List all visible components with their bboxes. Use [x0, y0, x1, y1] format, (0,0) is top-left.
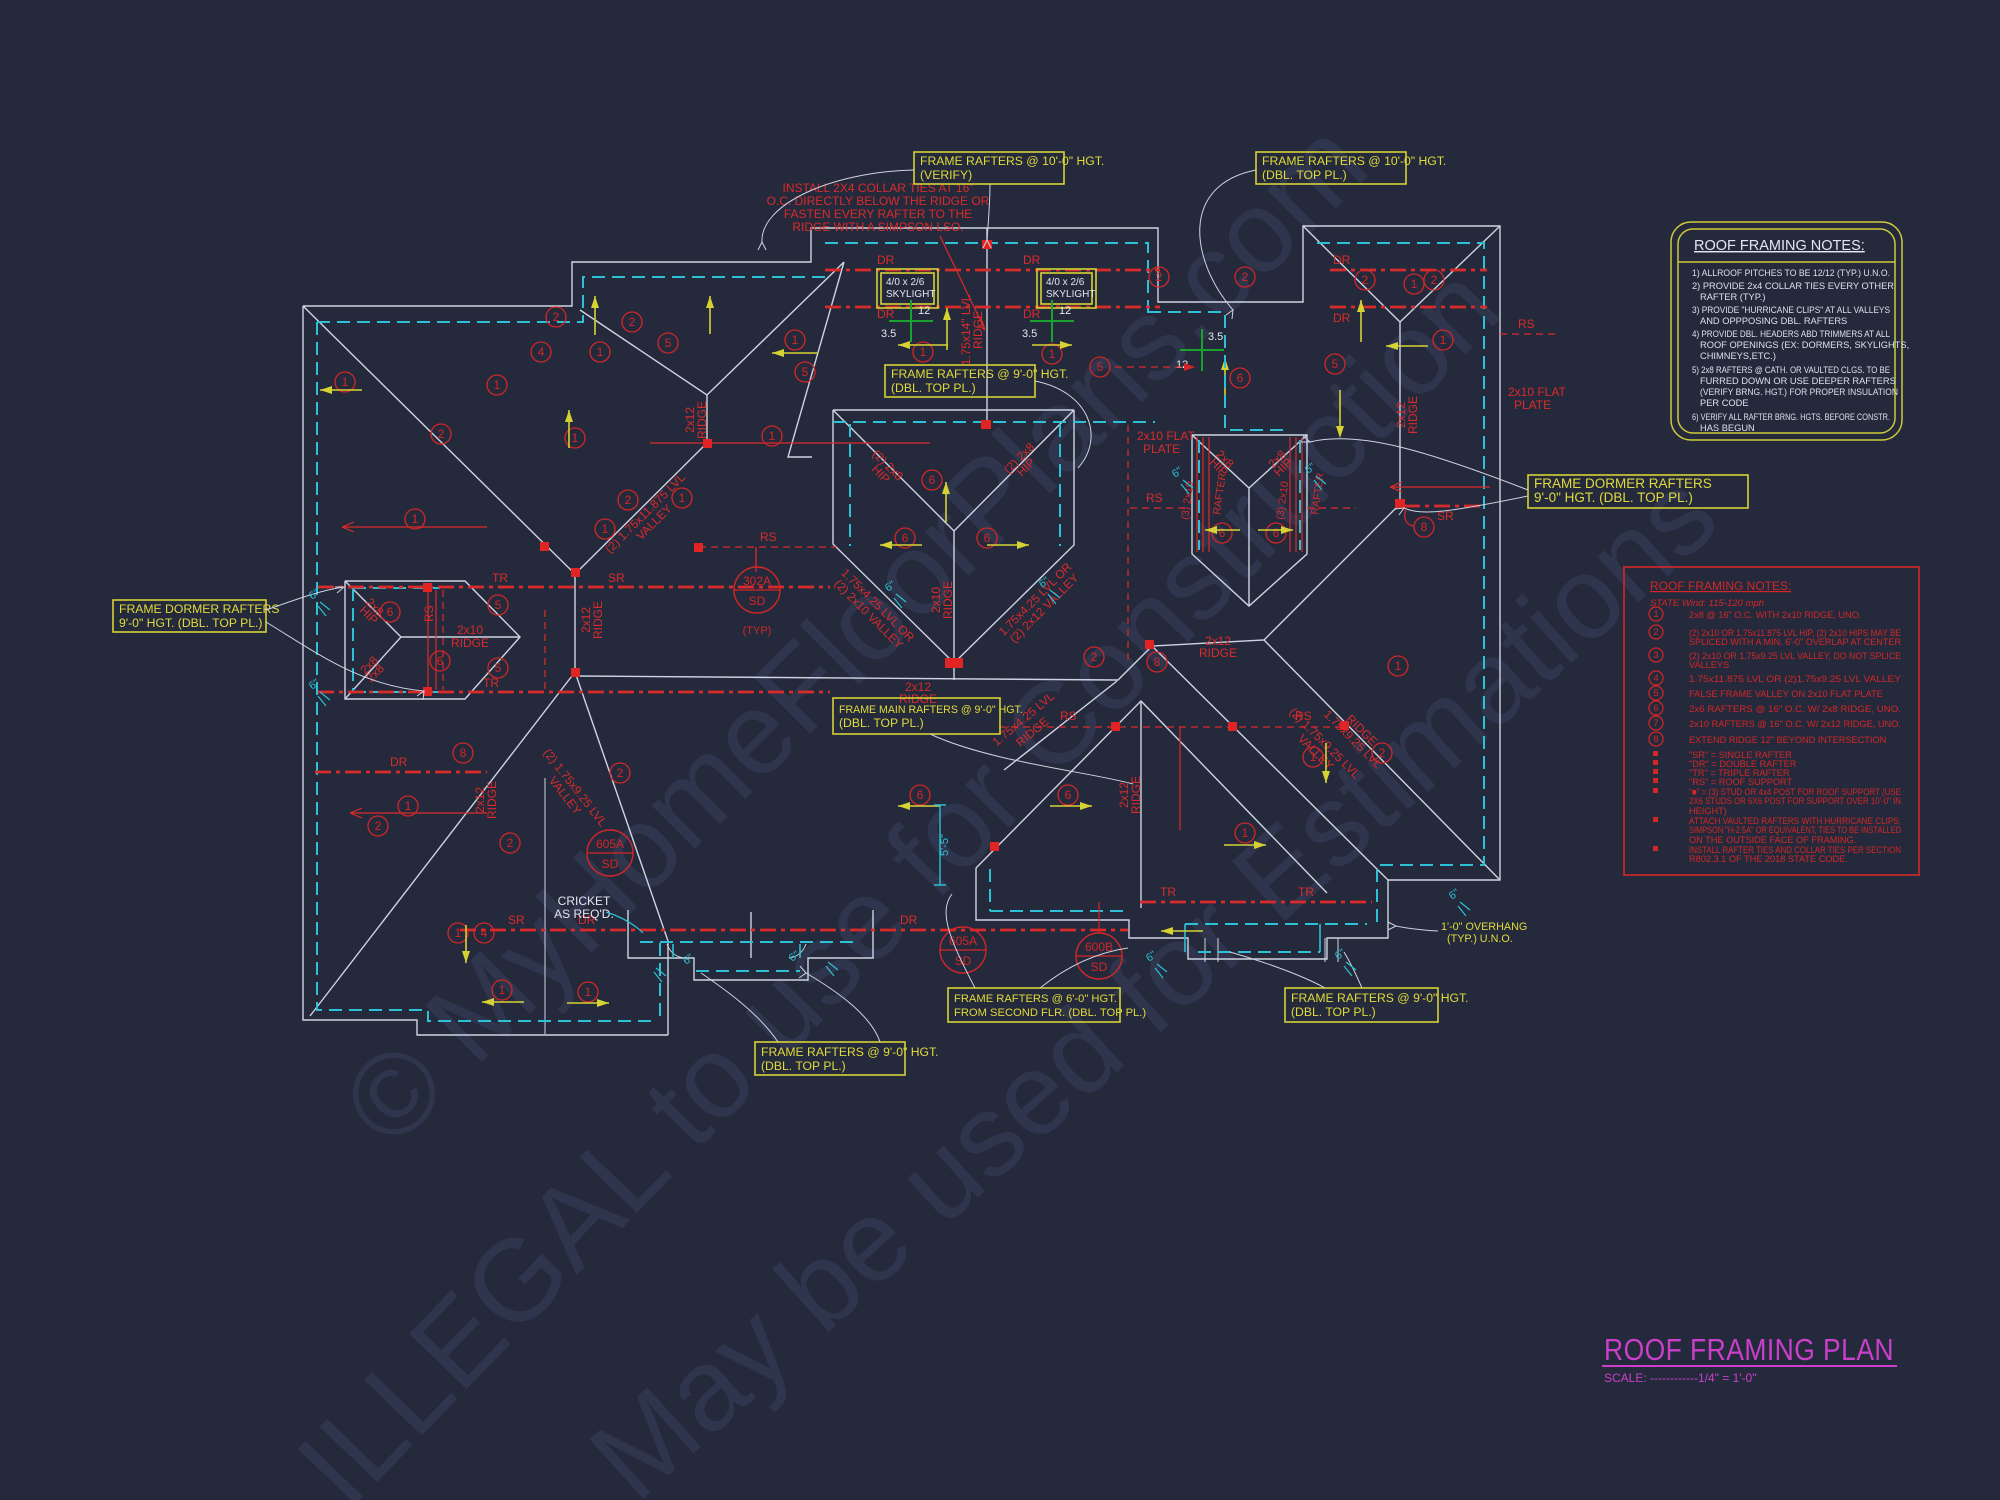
svg-text:SKYLIGHT: SKYLIGHT — [1046, 289, 1095, 300]
svg-text:6: 6 — [1219, 526, 1226, 540]
svg-text:ROOF FRAMING PLAN: ROOF FRAMING PLAN — [1604, 1332, 1894, 1367]
svg-text:DR: DR — [1333, 311, 1351, 325]
svg-text:2: 2 — [629, 315, 636, 329]
svg-text:1: 1 — [455, 926, 462, 940]
svg-text:6: 6 — [984, 531, 991, 545]
svg-text:AS REQ'D.: AS REQ'D. — [554, 907, 614, 921]
svg-text:9'-0" HGT. (DBL. TOP PL.): 9'-0" HGT. (DBL. TOP PL.) — [1534, 490, 1693, 505]
svg-text:12: 12 — [918, 305, 930, 317]
svg-text:6: 6 — [917, 788, 924, 802]
svg-text:FRAME RAFTERS @ 10'-0" HGT.: FRAME RAFTERS @ 10'-0" HGT. — [920, 154, 1104, 168]
svg-text:FRAME MAIN RAFTERS @ 9'-0" HGT: FRAME MAIN RAFTERS @ 9'-0" HGT. — [839, 704, 1023, 716]
svg-text:302A: 302A — [743, 574, 771, 588]
svg-text:6: 6 — [387, 605, 394, 619]
svg-text:7: 7 — [1653, 718, 1658, 729]
svg-text:6: 6 — [1237, 371, 1244, 385]
svg-text:RIDGE WITH A SIMPSON LSO.: RIDGE WITH A SIMPSON LSO. — [792, 220, 963, 234]
svg-text:1'-0" OVERHANG: 1'-0" OVERHANG — [1441, 921, 1527, 933]
svg-text:2: 2 — [617, 766, 624, 780]
svg-text:4: 4 — [481, 926, 488, 940]
svg-text:3.5: 3.5 — [1022, 328, 1037, 340]
svg-text:SD: SD — [1091, 960, 1108, 974]
svg-text:5: 5 — [802, 365, 809, 379]
svg-text:FALSE FRAME VALLEY ON 2x10 FLA: FALSE FRAME VALLEY ON 2x10 FLAT PLATE — [1689, 689, 1883, 699]
svg-text:1: 1 — [494, 378, 501, 392]
svg-text:SKYLIGHT: SKYLIGHT — [886, 289, 935, 300]
svg-text:1: 1 — [679, 491, 686, 505]
svg-text:2: 2 — [1379, 746, 1386, 760]
svg-text:1: 1 — [1049, 347, 1056, 361]
svg-text:(DBL. TOP PL.): (DBL. TOP PL.) — [761, 1059, 846, 1073]
svg-text:2: 2 — [507, 836, 514, 850]
svg-text:FRAME RAFTERS @ 9'-0" HGT.: FRAME RAFTERS @ 9'-0" HGT. — [761, 1045, 938, 1059]
svg-text:12: 12 — [1059, 305, 1071, 317]
svg-text:SIMPSON "H-2.5A" OR EQUIVALENT: SIMPSON "H-2.5A" OR EQUIVALENT, TIES TO … — [1689, 825, 1901, 835]
svg-text:DR: DR — [1333, 253, 1351, 267]
svg-text:RS: RS — [422, 605, 436, 622]
svg-text:6: 6 — [1273, 526, 1280, 540]
svg-text:SD: SD — [602, 857, 619, 871]
svg-text:5: 5 — [665, 336, 672, 350]
svg-text:1: 1 — [585, 985, 592, 999]
svg-text:CRICKET: CRICKET — [558, 894, 611, 908]
svg-text:(TYP): (TYP) — [743, 625, 772, 637]
svg-text:5: 5 — [1653, 688, 1658, 699]
svg-text:HAS BEGUN: HAS BEGUN — [1700, 423, 1755, 433]
svg-text:FRAME DORMER RAFTERS: FRAME DORMER RAFTERS — [1534, 476, 1712, 491]
svg-text:DR: DR — [1023, 307, 1041, 321]
svg-text:FRAME RAFTERS @ 10'-0" HGT.: FRAME RAFTERS @ 10'-0" HGT. — [1262, 154, 1446, 168]
svg-text:5: 5 — [1332, 357, 1339, 371]
svg-text:4) PROVIDE DBL. HEADERS ABD TR: 4) PROVIDE DBL. HEADERS ABD TRIMMERS AT … — [1692, 329, 1890, 339]
svg-text:RS: RS — [1518, 317, 1535, 331]
svg-text:1: 1 — [1653, 609, 1658, 620]
svg-text:AND OPPPOSING DBL. RAFTERS: AND OPPPOSING DBL. RAFTERS — [1700, 316, 1847, 326]
svg-text:2x8 @ 16" O.C. WITH 2x10 RIDGE: 2x8 @ 16" O.C. WITH 2x10 RIDGE, UNO. — [1689, 610, 1861, 620]
svg-text:INSTALL 2X4 COLLAR TIES AT 16": INSTALL 2X4 COLLAR TIES AT 16" — [782, 181, 973, 195]
svg-text:1: 1 — [792, 333, 799, 347]
svg-text:(TYP.) U.N.O.: (TYP.) U.N.O. — [1447, 933, 1513, 945]
svg-text:SR: SR — [508, 913, 525, 927]
svg-text:FASTEN EVERY RAFTER TO THE: FASTEN EVERY RAFTER TO THE — [784, 207, 972, 221]
svg-text:R802.3.1 OF THE 2018 STATE COD: R802.3.1 OF THE 2018 STATE CODE. — [1689, 854, 1848, 864]
svg-text:RIDGE: RIDGE — [695, 401, 709, 439]
svg-text:1.75x11.875 LVL OR (2)1.75x9.2: 1.75x11.875 LVL OR (2)1.75x9.25 LVL VALL… — [1689, 674, 1901, 684]
svg-text:605A: 605A — [596, 837, 624, 851]
svg-text:RIDGE: RIDGE — [1129, 776, 1143, 814]
svg-text:6: 6 — [437, 654, 444, 668]
svg-text:1: 1 — [342, 375, 349, 389]
svg-text:RIDGE: RIDGE — [451, 636, 489, 650]
svg-text:2X6 STUDS OR 6X6 POST FOR SUPP: 2X6 STUDS OR 6X6 POST FOR SUPPORT OVER 1… — [1689, 796, 1901, 806]
svg-text:2: 2 — [1156, 270, 1163, 284]
svg-text:(DBL. TOP PL.): (DBL. TOP PL.) — [1291, 1005, 1376, 1019]
svg-text:8: 8 — [1653, 734, 1658, 745]
svg-text:DR: DR — [900, 913, 918, 927]
svg-text:FRAME RAFTERS @ 9'-0" HGT.: FRAME RAFTERS @ 9'-0" HGT. — [1291, 991, 1468, 1005]
svg-text:RAFTER (TYP.): RAFTER (TYP.) — [1700, 292, 1765, 302]
svg-text:2: 2 — [1653, 627, 1658, 638]
svg-text:FRAME RAFTERS @ 9'-0" HGT.: FRAME RAFTERS @ 9'-0" HGT. — [891, 367, 1068, 381]
svg-text:RIDGE: RIDGE — [971, 311, 985, 349]
svg-text:FRAME DORMER RAFTERS: FRAME DORMER RAFTERS — [119, 602, 279, 616]
svg-text:4/0 x 2/6: 4/0 x 2/6 — [1046, 277, 1085, 288]
svg-text:RIDGE: RIDGE — [485, 781, 499, 819]
svg-text:2) PROVIDE 2x4 COLLAR TIES EVE: 2) PROVIDE 2x4 COLLAR TIES EVERY OTHER — [1692, 281, 1894, 291]
svg-text:4: 4 — [538, 345, 545, 359]
svg-text:(DBL. TOP PL.): (DBL. TOP PL.) — [1262, 168, 1347, 182]
svg-text:ROOF OPENINGS (EX: DORMERS, SK: ROOF OPENINGS (EX: DORMERS, SKYLIGHTS, — [1700, 340, 1909, 350]
svg-text:RIDGE: RIDGE — [591, 601, 605, 639]
svg-text:(VERIFY): (VERIFY) — [920, 168, 972, 182]
svg-text:1: 1 — [499, 983, 506, 997]
svg-text:1: 1 — [1411, 277, 1418, 291]
svg-text:RIDGE: RIDGE — [941, 581, 955, 619]
svg-text:6: 6 — [929, 473, 936, 487]
svg-text:3.5: 3.5 — [1208, 331, 1223, 343]
svg-text:(DBL. TOP PL.): (DBL. TOP PL.) — [839, 716, 924, 730]
svg-text:TR: TR — [1298, 885, 1314, 899]
svg-text:1: 1 — [1310, 750, 1317, 764]
svg-text:5: 5 — [495, 661, 502, 675]
svg-text:(VERIFY BRNG. HGT.) FOR PROPER: (VERIFY BRNG. HGT.) FOR PROPER INSULATIO… — [1700, 387, 1898, 397]
svg-text:DR: DR — [877, 253, 895, 267]
svg-text:DR: DR — [390, 755, 408, 769]
svg-text:6: 6 — [1065, 788, 1072, 802]
svg-text:2: 2 — [1242, 270, 1249, 284]
svg-text:1: 1 — [412, 512, 419, 526]
svg-text:1: 1 — [572, 431, 579, 445]
svg-text:2: 2 — [1091, 650, 1098, 664]
svg-text:RS: RS — [1146, 491, 1163, 505]
svg-text:RIDGE: RIDGE — [1199, 646, 1237, 660]
svg-text:SD: SD — [955, 954, 972, 968]
svg-text:6: 6 — [902, 531, 909, 545]
svg-text:2x10 RAFTERS @ 16" O.C. W/ 2x1: 2x10 RAFTERS @ 16" O.C. W/ 2x12 RIDGE, U… — [1689, 719, 1901, 729]
svg-text:2: 2 — [553, 310, 560, 324]
svg-text:2: 2 — [1362, 273, 1369, 287]
svg-text:9'-0" HGT. (DBL. TOP PL.): 9'-0" HGT. (DBL. TOP PL.) — [119, 616, 262, 630]
svg-text:1: 1 — [769, 429, 776, 443]
svg-text:SPLICED WITH A MIN. 6'-0" OVER: SPLICED WITH A MIN. 6'-0" OVERLAP AT CEN… — [1689, 637, 1901, 647]
svg-text:ROOF FRAMING NOTES:: ROOF FRAMING NOTES: — [1694, 238, 1865, 254]
svg-text:(DBL. TOP PL.): (DBL. TOP PL.) — [891, 381, 976, 395]
svg-text:1: 1 — [405, 799, 412, 813]
svg-text:ROOF FRAMING NOTES:: ROOF FRAMING NOTES: — [1650, 579, 1791, 593]
svg-text:SD: SD — [749, 594, 766, 608]
svg-text:5'-5": 5'-5" — [939, 834, 951, 856]
svg-text:2x10: 2x10 — [457, 623, 483, 637]
svg-text:8: 8 — [1421, 520, 1428, 534]
svg-text:HEIGHT): HEIGHT) — [1689, 806, 1727, 816]
svg-text:RIDGE: RIDGE — [1406, 396, 1420, 434]
svg-text:2: 2 — [375, 819, 382, 833]
svg-text:VALLEYS: VALLEYS — [1689, 660, 1729, 670]
svg-text:PLATE: PLATE — [1514, 398, 1551, 412]
svg-text:8: 8 — [1154, 655, 1161, 669]
svg-text:6) VERIFY ALL RAFTER BRNG. HGT: 6) VERIFY ALL RAFTER BRNG. HGTS. BEFORE … — [1692, 412, 1890, 422]
svg-text:8: 8 — [460, 746, 467, 760]
svg-text:1: 1 — [597, 345, 604, 359]
svg-text:4: 4 — [1653, 673, 1658, 684]
svg-text:5: 5 — [1097, 360, 1104, 374]
svg-text:3) PROVIDE "HURRICANE CLIPS" A: 3) PROVIDE "HURRICANE CLIPS" AT ALL VALL… — [1692, 305, 1890, 315]
svg-text:FURRED DOWN OR USE DEEPER RAFT: FURRED DOWN OR USE DEEPER RAFTERS — [1700, 376, 1896, 386]
svg-text:4/0 x 2/6: 4/0 x 2/6 — [886, 277, 925, 288]
svg-text:1: 1 — [920, 345, 927, 359]
svg-text:PER CODE: PER CODE — [1700, 398, 1749, 408]
svg-text:2x10 FLAT: 2x10 FLAT — [1137, 429, 1195, 443]
svg-text:2x6 RAFTERS @ 16" O.C. W/ 2x8: 2x6 RAFTERS @ 16" O.C. W/ 2x8 RIDGE, UNO… — [1689, 704, 1901, 714]
svg-text:DR: DR — [877, 307, 895, 321]
svg-text:1: 1 — [1440, 333, 1447, 347]
svg-text:2: 2 — [438, 427, 445, 441]
svg-text:2: 2 — [625, 493, 632, 507]
svg-text:5) 2x8 RAFTERS @ CATH. OR VAUL: 5) 2x8 RAFTERS @ CATH. OR VAULTED CLGS. … — [1692, 365, 1890, 375]
svg-text:"RS" = ROOF SUPPORT: "RS" = ROOF SUPPORT — [1689, 777, 1792, 787]
svg-text:1: 1 — [1395, 659, 1402, 673]
svg-text:FROM SECOND FLR. (DBL. TOP PL.: FROM SECOND FLR. (DBL. TOP PL.) — [954, 1007, 1146, 1019]
svg-text:3: 3 — [1653, 650, 1658, 661]
svg-text:SCALE: ------------1/4" = 1'-0: SCALE: ------------1/4" = 1'-0" — [1604, 1371, 1756, 1385]
svg-text:RS: RS — [1060, 709, 1077, 723]
svg-text:TR: TR — [492, 571, 508, 585]
svg-text:1: 1 — [1242, 826, 1249, 840]
svg-text:ON THE OUTSIDE FACE OF FRAMING: ON THE OUTSIDE FACE OF FRAMING. — [1689, 835, 1856, 845]
svg-text:FRAME RAFTERS @ 6'-0" HGT.: FRAME RAFTERS @ 6'-0" HGT. — [954, 993, 1117, 1005]
svg-text:6: 6 — [1653, 703, 1658, 714]
svg-text:1: 1 — [602, 522, 609, 536]
svg-text:STATE Wind: 115-120 mph: STATE Wind: 115-120 mph — [1650, 598, 1764, 609]
svg-text:2: 2 — [1431, 273, 1438, 287]
svg-text:2x10 FLAT: 2x10 FLAT — [1508, 385, 1566, 399]
svg-text:RS: RS — [760, 530, 777, 544]
svg-text:3.5: 3.5 — [881, 328, 896, 340]
svg-text:DR: DR — [1023, 253, 1041, 267]
svg-text:1) ALLROOF PITCHES TO BE 12/1: 1) ALLROOF PITCHES TO BE 12/12 (TYP.) U.… — [1692, 268, 1890, 278]
svg-text:PLATE: PLATE — [1143, 442, 1180, 456]
svg-text:EXTEND RIDGE 12" BEYOND INTERS: EXTEND RIDGE 12" BEYOND INTERSECTION — [1689, 735, 1886, 745]
svg-text:TR: TR — [1160, 885, 1176, 899]
svg-text:CHIMNEYS,ETC.): CHIMNEYS,ETC.) — [1700, 351, 1776, 361]
svg-text:5: 5 — [495, 598, 502, 612]
svg-text:SR: SR — [608, 571, 625, 585]
